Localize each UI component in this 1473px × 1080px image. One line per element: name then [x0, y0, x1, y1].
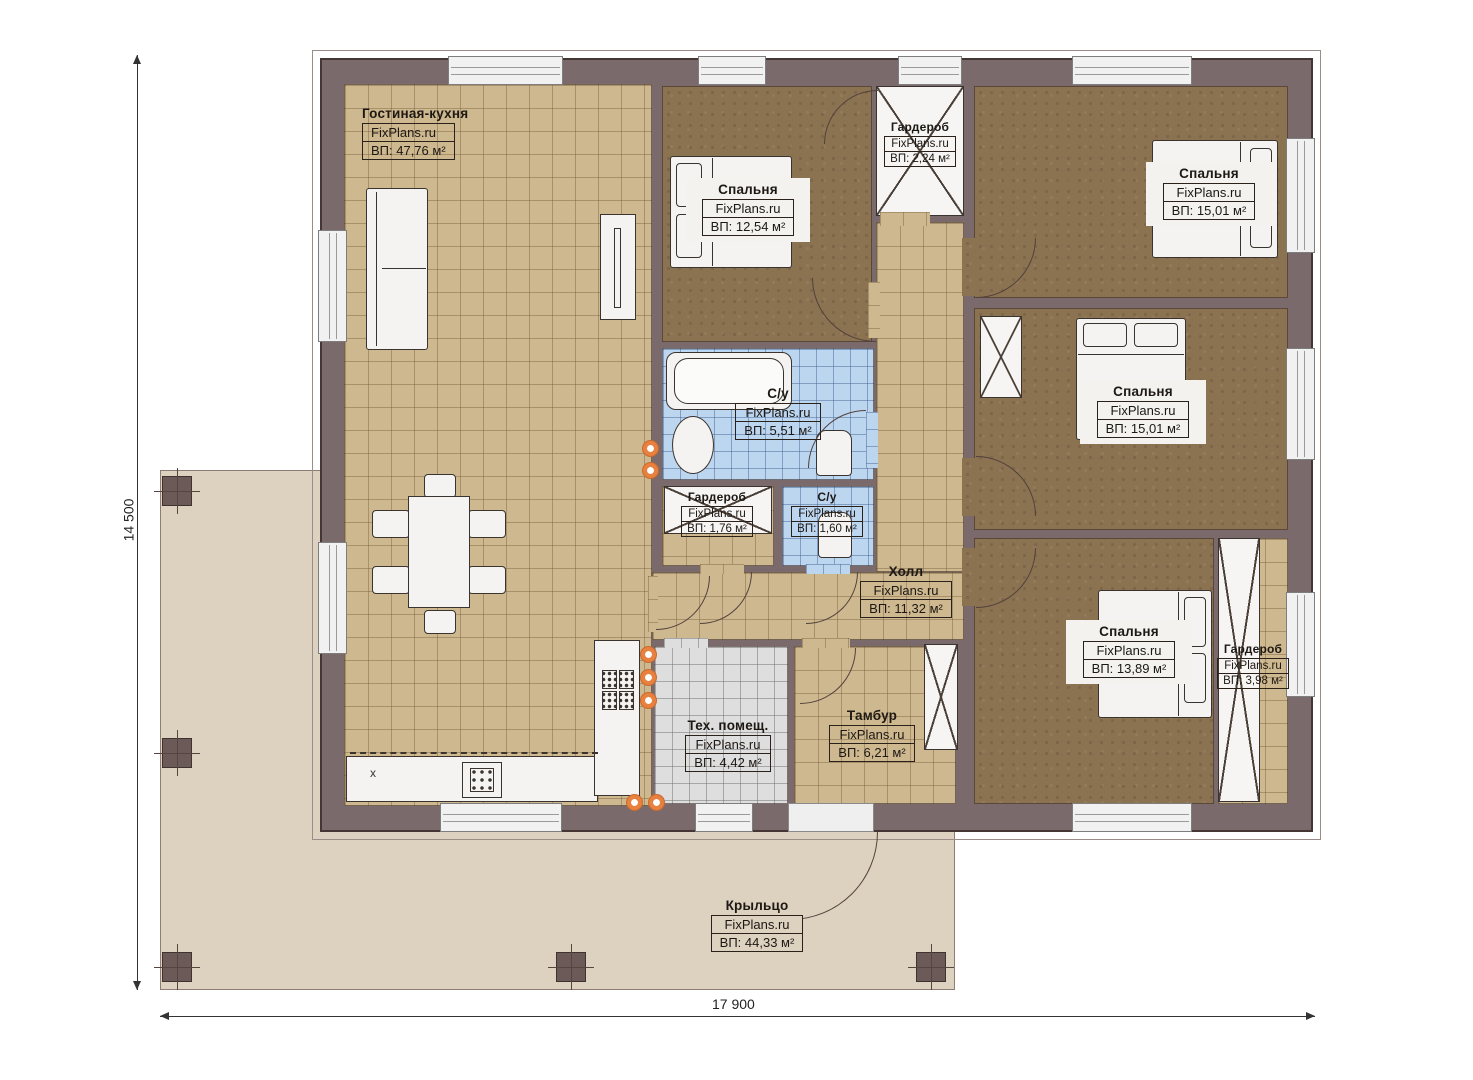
- brand-text: FixPlans.ru: [736, 404, 819, 422]
- brand-text: FixPlans.ru: [712, 916, 803, 934]
- brand-text: FixPlans.ru: [363, 124, 454, 142]
- room-area: ВП: 3,98 м²: [1218, 674, 1288, 688]
- porch-column: [162, 952, 192, 982]
- porch-column: [556, 952, 586, 982]
- room-label-hall: Холл FixPlans.ru ВП: 11,32 м²: [852, 564, 960, 618]
- window: [698, 56, 766, 85]
- brand-text: FixPlans.ru: [885, 137, 955, 152]
- floor-plan: x Гостиная-кухня FixPlans.ru ВП: 47,76 м…: [0, 0, 1473, 1080]
- closet-shelving: [980, 316, 1022, 398]
- door-opening: [880, 212, 930, 226]
- room-name: Тех. помещ.: [670, 718, 786, 733]
- room-area: ВП: 1,76 м²: [682, 522, 752, 536]
- room-area: ВП: 6,21 м²: [830, 744, 913, 761]
- room-area: ВП: 15,01 м²: [1164, 202, 1255, 219]
- room-label-bedroom-se: Спальня FixPlans.ru ВП: 13,89 м²: [1066, 620, 1192, 684]
- room-label-bedroom-e: Спальня FixPlans.ru ВП: 15,01 м²: [1080, 380, 1206, 444]
- bathroom-sink: [672, 416, 714, 474]
- room-name: С/у: [780, 490, 874, 504]
- hall-corridor-vertical: [876, 222, 964, 572]
- window: [440, 803, 562, 832]
- porch-edge: [954, 831, 955, 990]
- room-label-wc-hall: С/у FixPlans.ru ВП: 1,60 м²: [780, 490, 874, 537]
- porch-column: [162, 476, 192, 506]
- brand-text: FixPlans.ru: [686, 736, 769, 754]
- room-name: Спальня: [1084, 384, 1202, 399]
- dimension-arrow: [160, 1012, 169, 1020]
- window: [1286, 138, 1315, 253]
- room-area: ВП: 15,01 м²: [1098, 420, 1189, 437]
- counter-dash-line: [350, 752, 598, 754]
- porch-column: [162, 738, 192, 768]
- door-opening: [802, 638, 850, 648]
- window: [1072, 803, 1192, 832]
- sofa-back-line: [376, 192, 377, 346]
- room-name: Холл: [852, 564, 960, 579]
- brand-text: FixPlans.ru: [830, 726, 913, 744]
- room-name: Крыльцо: [698, 898, 816, 913]
- brand-text: FixPlans.ru: [703, 200, 794, 218]
- room-name: Спальня: [690, 182, 806, 197]
- window: [898, 56, 962, 85]
- riser-dot: [642, 462, 659, 479]
- room-name: Гостиная-кухня: [362, 106, 482, 121]
- dimension-arrow: [133, 981, 141, 990]
- door-opening: [962, 548, 976, 606]
- dining-chair: [468, 510, 506, 538]
- room-label-wardrobe-se: Гардероб FixPlans.ru ВП: 3,98 м²: [1206, 642, 1300, 689]
- dimension-width: 17 900: [712, 996, 755, 1012]
- dimension-height: 14 500: [120, 499, 136, 542]
- room-name: Спальня: [1150, 166, 1268, 181]
- riser-dot: [642, 440, 659, 457]
- kitchen-sink-basin: [470, 768, 494, 792]
- room-label-living: Гостиная-кухня FixPlans.ru ВП: 47,76 м²: [362, 106, 482, 160]
- room-name: Гардероб: [1206, 642, 1300, 656]
- vent-shaft: [924, 644, 958, 750]
- brand-text: FixPlans.ru: [792, 507, 862, 522]
- tv-screen: [614, 228, 621, 308]
- porch-edge: [160, 989, 955, 990]
- riser-dot: [640, 646, 657, 663]
- room-area: ВП: 44,33 м²: [712, 934, 803, 951]
- room-label-bedroom-top: Спальня FixPlans.ru ВП: 12,54 м²: [686, 178, 810, 242]
- dining-chair: [372, 510, 410, 538]
- brand-text: FixPlans.ru: [1164, 184, 1255, 202]
- room-name: Тамбур: [818, 708, 926, 723]
- pillow: [1083, 323, 1127, 347]
- dining-chair: [468, 566, 506, 594]
- room-area: ВП: 5,51 м²: [736, 422, 819, 439]
- kitchen-counter-side: [594, 640, 640, 796]
- dining-table: [408, 496, 470, 608]
- window: [695, 803, 753, 832]
- window: [318, 542, 347, 654]
- riser-dot: [648, 794, 665, 811]
- room-label-wardrobe-top: Гардероб FixPlans.ru ВП: 2,24 м²: [872, 120, 968, 167]
- room-area: ВП: 47,76 м²: [363, 142, 454, 159]
- room-name: Гардероб: [872, 120, 968, 134]
- brand-text: FixPlans.ru: [1084, 642, 1175, 660]
- brand-text: FixPlans.ru: [1098, 402, 1189, 420]
- kitchen-x-mark: x: [370, 766, 376, 780]
- brand-text: FixPlans.ru: [682, 507, 752, 522]
- dimension-line-vertical: [137, 55, 138, 990]
- dimension-line-horizontal: [160, 1016, 1315, 1017]
- riser-dot: [640, 692, 657, 709]
- porch-column: [916, 952, 946, 982]
- riser-dot: [626, 794, 643, 811]
- room-label-porch: Крыльцо FixPlans.ru ВП: 44,33 м²: [698, 898, 816, 952]
- porch-edge: [160, 470, 323, 471]
- window: [1072, 56, 1192, 85]
- dimension-arrow: [1306, 1012, 1315, 1020]
- dining-chair: [424, 474, 456, 498]
- room-label-bedroom-ne: Спальня FixPlans.ru ВП: 15,01 м²: [1146, 162, 1272, 226]
- room-area: ВП: 13,89 м²: [1084, 660, 1175, 677]
- door-opening: [962, 238, 976, 296]
- blanket-line: [1078, 354, 1184, 355]
- riser-dot: [640, 669, 657, 686]
- room-label-wardrobe-hall: Гардероб FixPlans.ru ВП: 1,76 м²: [664, 490, 770, 537]
- pillow: [1134, 323, 1178, 347]
- room-area: ВП: 4,42 м²: [686, 754, 769, 771]
- room-area: ВП: 1,60 м²: [792, 522, 862, 536]
- window: [448, 56, 563, 85]
- room-area: ВП: 2,24 м²: [885, 152, 955, 166]
- door-opening: [664, 638, 708, 648]
- window: [318, 230, 347, 342]
- room-area: ВП: 12,54 м²: [703, 218, 794, 235]
- room-label-tech: Тех. помещ. FixPlans.ru ВП: 4,42 м²: [670, 718, 786, 772]
- room-name: С/у: [722, 386, 834, 401]
- door-opening: [962, 458, 976, 516]
- dining-chair: [372, 566, 410, 594]
- porch-edge: [160, 470, 161, 990]
- room-label-tambour: Тамбур FixPlans.ru ВП: 6,21 м²: [818, 708, 926, 762]
- window: [1286, 348, 1315, 460]
- brand-text: FixPlans.ru: [861, 582, 951, 600]
- dining-chair: [424, 610, 456, 634]
- room-label-bathroom: С/у FixPlans.ru ВП: 5,51 м²: [722, 386, 834, 440]
- door-opening: [866, 412, 878, 468]
- room-name: Спальня: [1070, 624, 1188, 639]
- dimension-arrow: [133, 55, 141, 64]
- room-name: Гардероб: [664, 490, 770, 504]
- brand-text: FixPlans.ru: [1218, 659, 1288, 674]
- sofa-seat-line: [382, 268, 426, 269]
- room-area: ВП: 11,32 м²: [861, 600, 951, 617]
- entrance-opening: [788, 803, 874, 832]
- stove: [600, 668, 636, 712]
